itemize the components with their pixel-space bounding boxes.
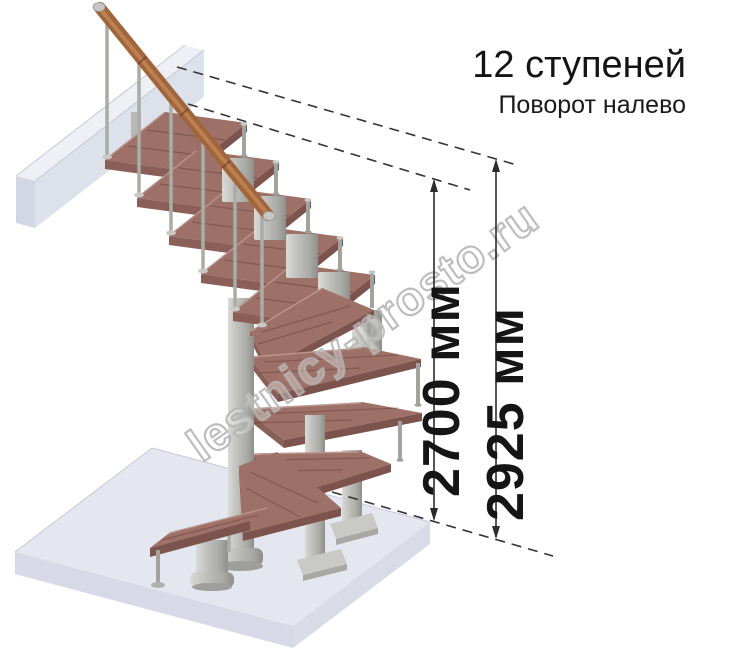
dimension-label-2925: 2925 мм bbox=[477, 307, 535, 521]
staircase-diagram-page: lestnicy-prosto.ru 2700 мм 2925 мм 12 ст… bbox=[0, 0, 744, 655]
turn-direction-label: Поворот налево bbox=[498, 91, 686, 119]
handrail-cap bbox=[93, 3, 105, 12]
staircase-render: lestnicy-prosto.ru 2700 мм 2925 мм 12 ст… bbox=[0, 0, 744, 655]
winder-connector-rod bbox=[397, 421, 404, 462]
dimension-label-2700: 2700 мм bbox=[413, 283, 471, 497]
steps-count-label: 12 ступеней bbox=[472, 44, 686, 86]
handrail-cap bbox=[263, 212, 275, 221]
